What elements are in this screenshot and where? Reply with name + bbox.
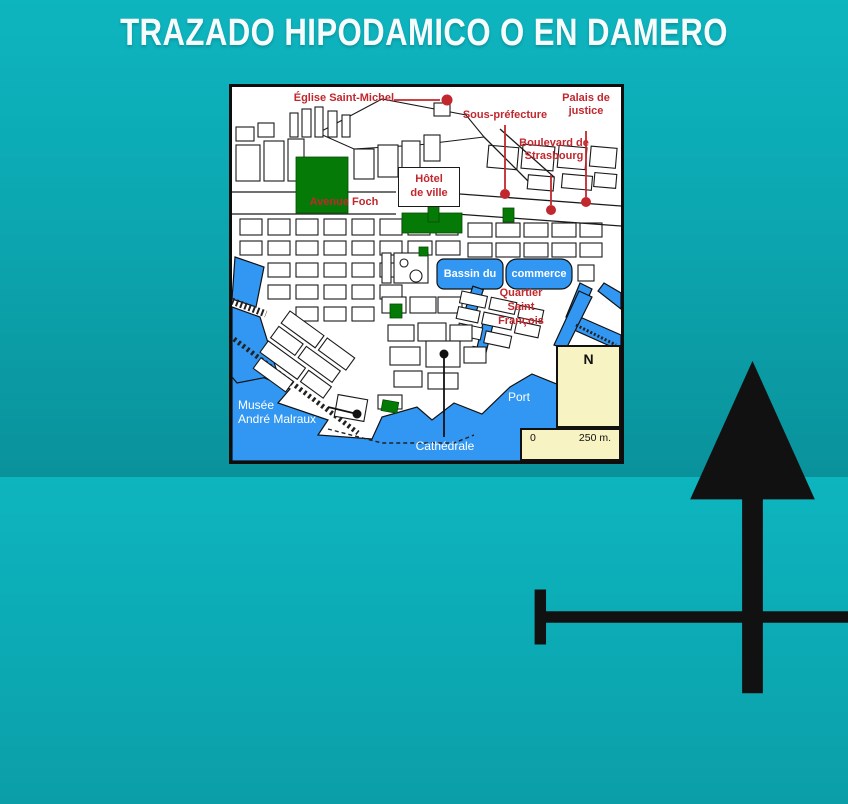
marker-musee <box>353 410 362 419</box>
scale-legend-box: 0 250 m. <box>520 428 621 461</box>
label-hotel-line1: Hôtel <box>415 173 443 187</box>
north-legend-box: N <box>556 345 621 428</box>
label-hotel-de-ville: Hôtel de ville <box>398 167 460 207</box>
label-hotel-line2: de ville <box>410 187 447 201</box>
canal-east-edge <box>598 283 621 309</box>
slide-title: TRAZADO HIPODAMICO O EN DAMERO <box>76 12 771 55</box>
city-map: Église Saint-Michel Sous-préfecture Pala… <box>229 84 624 464</box>
marker-cathedrale <box>440 350 449 359</box>
scale-bar <box>522 430 848 804</box>
label-bassin-du: Bassin du <box>437 259 503 289</box>
marker-boulevard <box>546 205 556 215</box>
marker-eglise <box>442 95 453 106</box>
marker-sous-prefecture <box>500 189 510 199</box>
slide: TRAZADO HIPODAMICO O EN DAMERO <box>0 0 848 477</box>
basin-upper <box>232 257 264 307</box>
label-commerce: commerce <box>506 259 572 289</box>
marker-palais <box>581 197 591 207</box>
